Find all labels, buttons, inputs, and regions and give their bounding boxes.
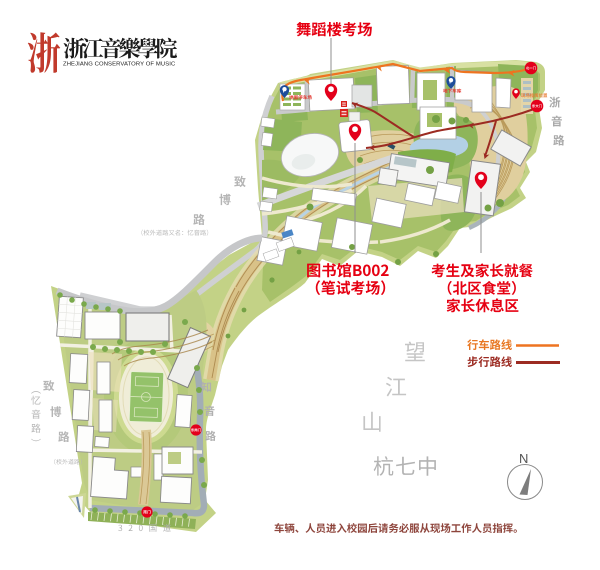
svg-text:N: N xyxy=(519,451,528,466)
svg-text:ZHEJIANG CONSERVATORY OF MUSIC: ZHEJIANG CONSERVATORY OF MUSIC xyxy=(63,62,176,68)
